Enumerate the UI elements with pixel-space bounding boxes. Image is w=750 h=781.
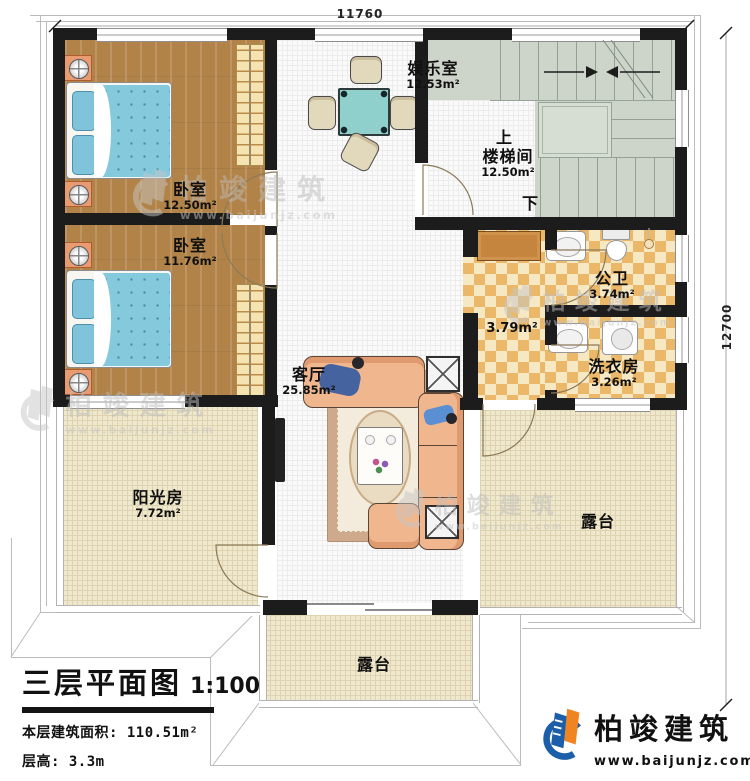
window (512, 28, 640, 42)
dimension-top: 11760 (325, 7, 395, 21)
stair-treads-lower (540, 158, 675, 217)
wardrobe (236, 284, 264, 396)
terrace-parapet (480, 607, 682, 615)
terrace-parapet (676, 410, 684, 613)
eave-line (522, 628, 701, 629)
room-label-stairwell: 楼梯间 12.50m² (462, 148, 554, 179)
eave-line (36, 21, 694, 22)
lamp-icon (69, 59, 89, 79)
eave-line (694, 15, 695, 622)
person-head (446, 413, 457, 424)
lamp-icon (69, 246, 89, 266)
eave-line (11, 538, 12, 658)
brand-logo: 柏竣建筑 www.baijunjz.com (538, 706, 750, 769)
wall-segment (463, 313, 478, 398)
cabinet (477, 231, 541, 261)
person-head (352, 357, 364, 369)
wall-segment (460, 398, 483, 410)
sink-basin (554, 237, 581, 257)
room-label-bathroom: 公卫 3.74m² (579, 270, 645, 301)
nightstand (63, 369, 92, 395)
chair (390, 96, 418, 130)
floor-drain (644, 239, 654, 249)
sink-basin (556, 329, 583, 349)
lamp-icon (69, 185, 89, 205)
cup (365, 435, 375, 445)
bed (66, 82, 172, 179)
room-label-entertainment: 娱乐室 12.53m² (390, 60, 476, 91)
title-rule (22, 707, 214, 713)
room-label-living: 客厅 25.85m² (268, 366, 350, 397)
brand-text: 柏竣建筑 www.baijunjz.com (594, 706, 750, 769)
end-table (425, 505, 459, 539)
terrace-parapet (259, 700, 478, 708)
eave-line (528, 622, 695, 623)
game-table (338, 88, 390, 136)
pillow (72, 135, 96, 175)
room-label-terrace-right: 露台 (568, 513, 628, 531)
floor-plan-canvas: 娱乐室 12.53m² 楼梯间 12.50m² 上 下 卧室 12.50m² 卧… (0, 0, 750, 781)
room-label-bedroom1: 卧室 12.50m² (150, 181, 230, 212)
wall-segment (545, 225, 557, 250)
eave-line (11, 657, 211, 658)
pillow (72, 324, 96, 364)
title-row: 三层平面图1:100 (22, 660, 260, 702)
stair-edge-line (490, 100, 675, 101)
room-label-sunroom: 阳光房 7.72m² (116, 489, 200, 520)
room-label-hallway: 3.79m² (478, 322, 546, 337)
plan-title: 三层平面图 (22, 666, 182, 700)
nightstand (63, 181, 92, 207)
window (315, 28, 423, 42)
plan-scale: 1:100 (190, 674, 260, 699)
terrace-right-floor (480, 410, 676, 607)
end-table (426, 356, 460, 392)
eave-line (520, 612, 521, 766)
window (97, 28, 227, 42)
brand-logo-icon (538, 706, 585, 768)
sunroom-glass-wall (56, 605, 260, 613)
lamp-icon (69, 373, 89, 393)
tv (275, 418, 285, 482)
eave-line (40, 15, 41, 612)
stair-down-label: 下 (522, 190, 538, 214)
wall-segment (53, 213, 230, 225)
wall-segment (265, 40, 277, 170)
stair-treads-right (612, 102, 675, 158)
room-label-bedroom2: 卧室 11.76m² (150, 237, 230, 268)
wall-segment (415, 217, 428, 230)
dimension-right: 12700 (720, 297, 734, 357)
window (70, 395, 185, 409)
wall-segment (53, 395, 70, 407)
wall-segment (537, 398, 575, 410)
bed (66, 270, 172, 368)
wall-segment (432, 600, 478, 615)
wall-segment (423, 28, 512, 40)
coffee-table (357, 427, 403, 485)
floor-area-line: 本层建筑面积: 110.51m² (22, 722, 260, 742)
stair-up-label: 上 (496, 124, 512, 148)
sofa-ottoman (368, 503, 420, 549)
brand-name: 柏竣建筑 (594, 706, 750, 748)
room-label-terrace-bottom: 露台 (344, 656, 404, 674)
terrace-parapet (259, 615, 267, 703)
window (575, 398, 650, 412)
title-block: 三层平面图1:100 本层建筑面积: 110.51m² 层高: 3.3m (22, 660, 260, 771)
window (675, 317, 689, 363)
flowers (370, 456, 392, 476)
washer-drum (611, 328, 633, 350)
brand-website: www.baijunjz.com (594, 754, 750, 769)
chair (308, 96, 336, 130)
terrace-parapet (472, 615, 480, 703)
nightstand (63, 242, 92, 268)
room-label-laundry: 洗衣房 3.26m² (572, 358, 656, 389)
wall-segment (263, 600, 307, 615)
cup (386, 435, 396, 445)
wall-segment (262, 398, 275, 545)
eave-line (700, 15, 701, 628)
chair (350, 56, 382, 84)
wall-segment (227, 28, 315, 40)
nightstand (63, 55, 92, 81)
sliding-door (307, 604, 432, 610)
watermark-logo-icon (16, 383, 58, 438)
wardrobe (236, 44, 264, 166)
pillow (72, 91, 96, 131)
washing-machine (602, 321, 638, 355)
stair-treads-upper (500, 40, 675, 100)
wall-segment (265, 226, 277, 235)
pillow (72, 279, 96, 319)
wall-segment (545, 305, 557, 345)
sunroom-glass-wall (56, 405, 64, 608)
floor-height-line: 层高: 3.3m (22, 751, 260, 771)
eave-line (46, 21, 47, 606)
window (675, 90, 689, 147)
window (675, 235, 689, 282)
wall-segment (650, 398, 687, 410)
wall-segment (463, 217, 478, 257)
wall-segment (545, 305, 675, 317)
